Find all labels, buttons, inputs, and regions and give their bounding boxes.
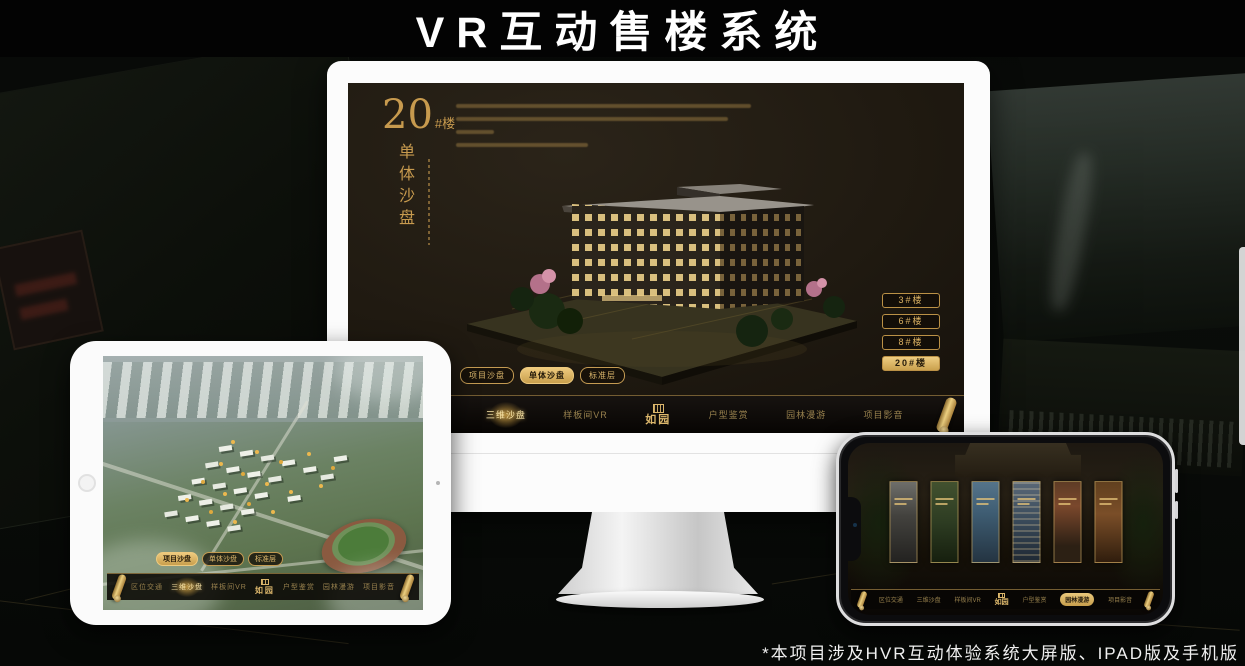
subtab-standard-floor[interactable]: 标准层 (580, 367, 625, 384)
page-title: VR互动售楼系统 (416, 0, 830, 60)
aerial-road (200, 400, 309, 571)
scroll-icon[interactable] (935, 396, 958, 433)
nav-item-garden-tour[interactable]: 园林漫游 (323, 582, 355, 592)
subtab-project-sandtable[interactable]: 项目沙盘 (460, 367, 514, 384)
nav-item-showroom-vr[interactable]: 样板间VR (954, 595, 980, 604)
monitor-stand-neck (558, 512, 758, 594)
nav-item-project-media[interactable]: 项目影音 (363, 582, 395, 592)
gallery-panel[interactable] (971, 481, 999, 563)
subtab-project-sandtable[interactable]: 项目沙盘 (156, 552, 198, 566)
subtab-standard-floor[interactable]: 标准层 (248, 552, 283, 566)
footnote: *本项目涉及HVR互动体验系统大屏版、IPAD版及手机版 (762, 639, 1239, 664)
gallery-panel[interactable] (930, 481, 958, 563)
gallery-panel[interactable] (1053, 481, 1081, 563)
scroll-icon[interactable] (856, 590, 867, 608)
ruyuan-logo: 如园 (995, 593, 1009, 606)
tablet-navbar: 区位交通 三维沙盘 样板间VR 如园 户型鉴赏 园林漫游 项目影音 (107, 573, 419, 600)
headline-english-deco (428, 159, 430, 245)
building-subtitle: 单体沙盘 (392, 143, 416, 231)
logo-text: 如园 (255, 587, 275, 595)
scroll-icon[interactable] (399, 573, 415, 600)
ruyuan-logo: 如园 (255, 579, 275, 595)
notch (848, 497, 861, 561)
tablet-device: 项目沙盘 单体沙盘 标准层 区位交通 三维沙盘 样板间VR 如园 户型鉴赏 园林… (70, 341, 451, 625)
nav-item-garden-tour[interactable]: 园林漫游 (786, 408, 826, 421)
power-button[interactable] (1175, 469, 1178, 493)
building-3d-viewport[interactable] (452, 149, 882, 389)
gallery-panel[interactable] (1012, 481, 1040, 563)
title-banner: VR互动售楼系统 (0, 0, 1245, 57)
floor-button-6[interactable]: 6#楼 (882, 314, 940, 329)
building-number: 20 (382, 92, 433, 138)
seal-icon (261, 579, 269, 585)
volume-button[interactable] (1175, 501, 1178, 519)
building-headline: 20#楼 单体沙盘 (382, 95, 455, 231)
courtyard-gate (955, 443, 1081, 477)
nav-item-location[interactable]: 区位交通 (879, 595, 903, 604)
nav-item-project-media[interactable]: 项目影音 (864, 408, 904, 421)
seal-icon (998, 593, 1005, 598)
river-shape (1045, 151, 1098, 313)
scroll-icon[interactable] (111, 573, 127, 600)
camera-dot (436, 481, 440, 485)
logo-text: 如园 (995, 599, 1009, 606)
building-number-badges (231, 440, 235, 444)
ruyuan-logo: 如园 (645, 404, 671, 426)
tablet-screen[interactable]: 项目沙盘 单体沙盘 标准层 区位交通 三维沙盘 样板间VR 如园 户型鉴赏 园林… (103, 356, 423, 610)
stage: VR互动售楼系统 20#楼 单体沙盘 (0, 0, 1245, 666)
scroll-icon[interactable] (1143, 590, 1154, 608)
nav-item-3d-sandtable[interactable]: 三维沙盘 (171, 582, 203, 592)
nav-item-garden-tour[interactable]: 园林漫游 (1060, 593, 1094, 606)
partial-device-edge (1239, 247, 1245, 445)
subtab-single-sandtable[interactable]: 单体沙盘 (202, 552, 244, 566)
seal-icon (653, 404, 664, 413)
floor-button-20[interactable]: 20#楼 (882, 356, 940, 371)
phone-device: 区位交通 三维沙盘 样板间VR 如园 户型鉴赏 园林漫游 项目影音 (836, 432, 1175, 626)
home-button[interactable] (78, 474, 96, 492)
monitor-stand-base (556, 591, 764, 608)
subtab-single-sandtable[interactable]: 单体沙盘 (520, 367, 574, 384)
nav-item-3d-sandtable[interactable]: 三维沙盘 (917, 595, 941, 604)
gallery-panels (889, 481, 1122, 563)
nav-item-floorplans[interactable]: 户型鉴赏 (709, 408, 749, 421)
nav-item-showroom-vr[interactable]: 样板间VR (563, 408, 608, 421)
nav-item-floorplans[interactable]: 户型鉴赏 (283, 582, 315, 592)
gallery-panel[interactable] (1094, 481, 1122, 563)
building-number-suffix: #楼 (435, 116, 455, 131)
background-river-photo (987, 73, 1245, 343)
floor-button-8[interactable]: 8#楼 (882, 335, 940, 350)
front-camera-dot (853, 523, 857, 527)
monitor-subtabs: 项目沙盘 单体沙盘 标准层 (460, 367, 625, 384)
tablet-subtabs: 项目沙盘 单体沙盘 标准层 (156, 552, 283, 566)
nav-item-3d-sandtable[interactable]: 三维沙盘 (486, 408, 526, 421)
phone-screen[interactable]: 区位交通 三维沙盘 样板间VR 如园 户型鉴赏 园林漫游 项目影音 (848, 443, 1163, 615)
floor-button-group: 3#楼 6#楼 8#楼 20#楼 (882, 293, 940, 371)
phone-navbar: 区位交通 三维沙盘 样板间VR 如园 户型鉴赏 园林漫游 项目影音 (851, 589, 1160, 609)
nav-item-showroom-vr[interactable]: 样板间VR (211, 582, 247, 592)
logo-text: 如园 (645, 415, 671, 426)
nav-item-floorplans[interactable]: 户型鉴赏 (1022, 595, 1046, 604)
nav-item-location[interactable]: 区位交通 (131, 582, 163, 592)
floor-button-3[interactable]: 3#楼 (882, 293, 940, 308)
gallery-panel[interactable] (889, 481, 917, 563)
nav-item-project-media[interactable]: 项目影音 (1108, 595, 1132, 604)
